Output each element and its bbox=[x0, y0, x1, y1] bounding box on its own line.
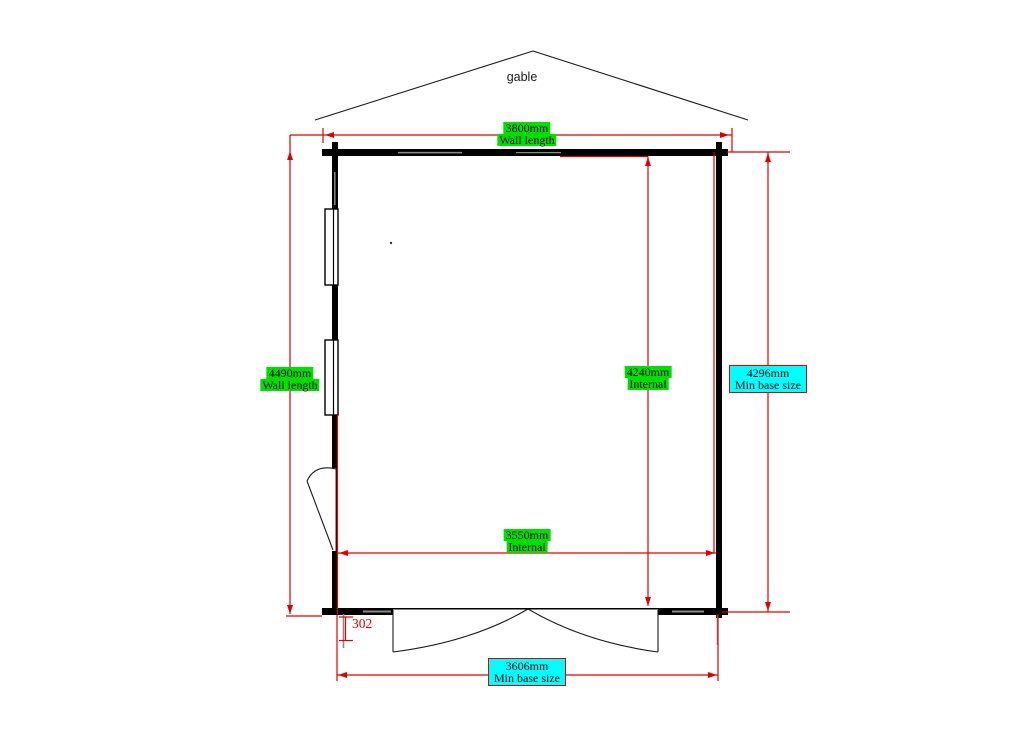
side-door bbox=[307, 468, 336, 550]
dim-label-min-base-bottom: 3606mm Min base size bbox=[488, 658, 566, 686]
gable-roof-outline bbox=[315, 51, 748, 120]
dim-label-door-offset: 302 bbox=[352, 617, 372, 631]
dim-caption: Internal bbox=[627, 378, 668, 390]
window-lower bbox=[325, 340, 338, 415]
dim-label-wall-length-top: 3800mm Wall length bbox=[497, 122, 556, 146]
floor-plan-drawing bbox=[0, 0, 1032, 735]
dim-label-wall-length-left: 4490mm Wall length bbox=[260, 367, 319, 391]
right-wall bbox=[716, 142, 722, 618]
window-upper bbox=[325, 209, 338, 285]
side-door-swing-arc bbox=[307, 468, 336, 481]
floor-plan-canvas: gable 3800mm Wall length 4490mm Wall len… bbox=[0, 0, 1032, 735]
dim-label-internal-height: 4240mm Internal bbox=[625, 366, 672, 390]
dim-caption: Internal bbox=[506, 541, 547, 553]
double-door-arc-left bbox=[393, 609, 528, 652]
wall-joint-marks bbox=[335, 153, 718, 648]
double-door-arc-right bbox=[528, 609, 658, 652]
dim-caption: Min base size bbox=[735, 379, 801, 391]
side-door-jamb-line bbox=[336, 468, 337, 551]
dim-door-offset bbox=[339, 617, 353, 641]
gable-label: gable bbox=[507, 70, 538, 84]
dim-caption: Wall length bbox=[260, 379, 319, 391]
double-door-header-line bbox=[393, 608, 658, 610]
dim-caption: Min base size bbox=[494, 672, 560, 684]
stray-dot bbox=[390, 242, 392, 244]
side-door-leaf bbox=[307, 481, 333, 550]
dim-label-internal-width: 3550mm Internal bbox=[504, 529, 551, 553]
dim-label-min-base-right: 4296mm Min base size bbox=[729, 365, 807, 393]
left-wall-seg2 bbox=[332, 285, 338, 340]
double-door bbox=[393, 609, 658, 652]
dim-caption: Wall length bbox=[497, 134, 556, 146]
